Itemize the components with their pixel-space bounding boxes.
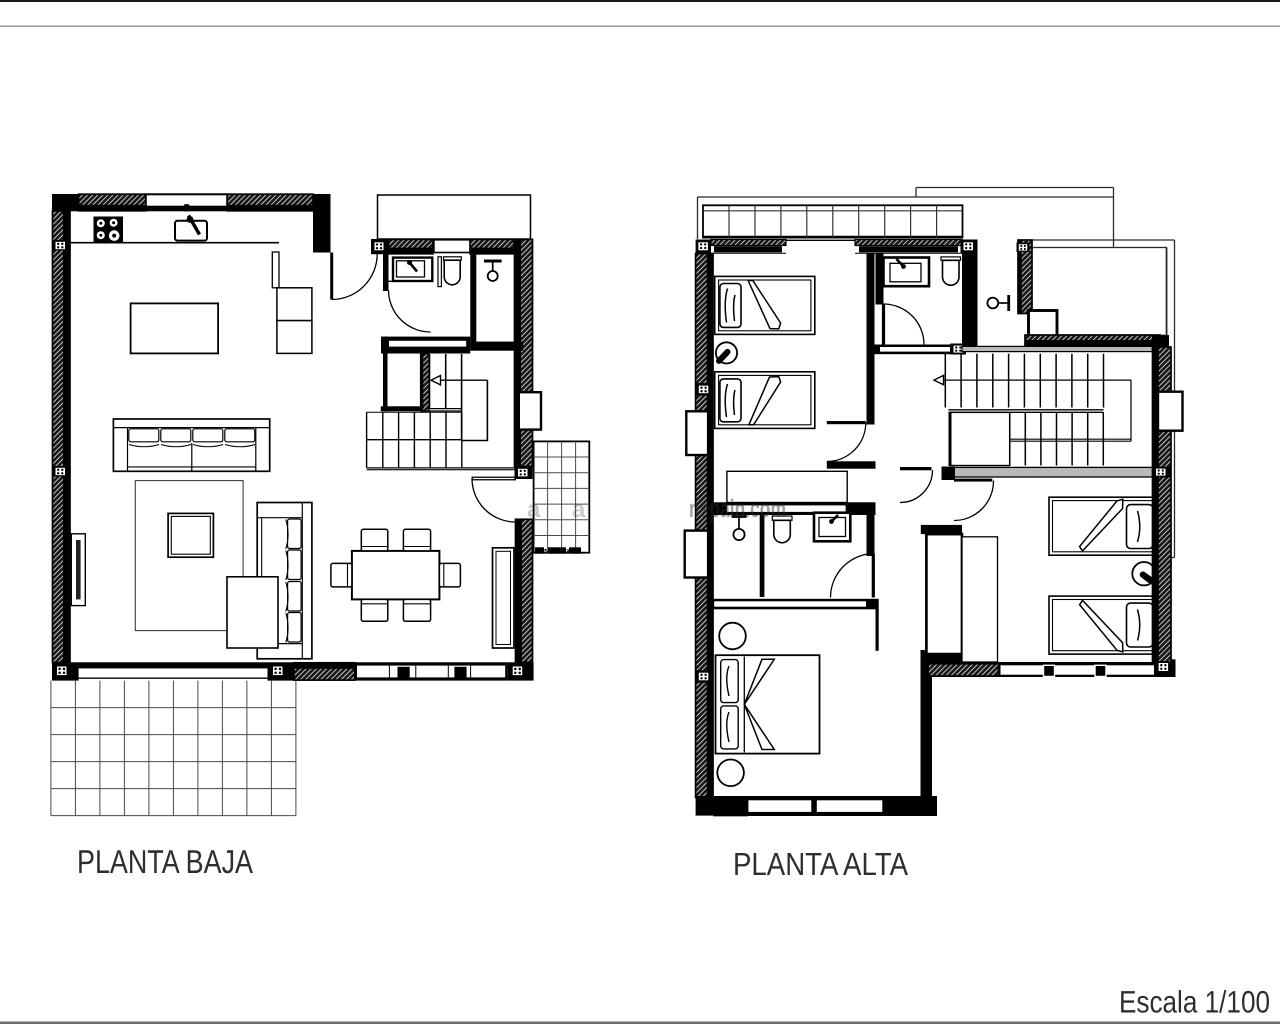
svg-text:Escala 1/100: Escala 1/100 bbox=[1119, 984, 1270, 1019]
svg-text:a: a bbox=[527, 496, 541, 523]
svg-text:PLANTA ALTA: PLANTA ALTA bbox=[733, 846, 909, 882]
svg-text:nspain.com: nspain.com bbox=[689, 495, 786, 523]
svg-text:PLANTA BAJA: PLANTA BAJA bbox=[77, 843, 253, 880]
svg-text:a: a bbox=[572, 496, 586, 523]
